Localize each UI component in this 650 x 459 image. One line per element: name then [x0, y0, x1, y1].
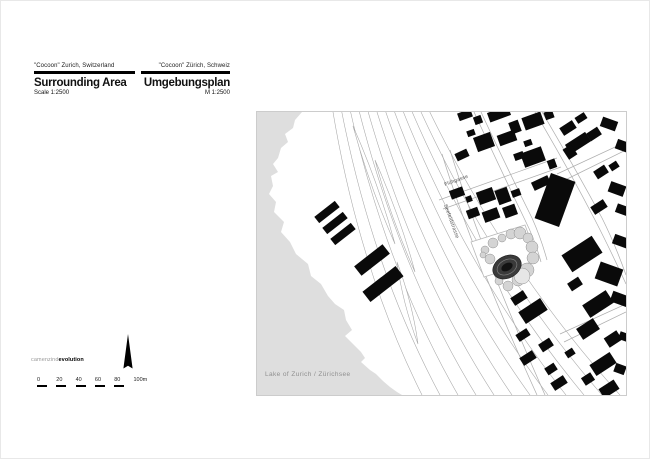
building-footprint: [454, 149, 469, 162]
building-footprint: [476, 187, 496, 205]
north-arrow-icon: [120, 333, 136, 370]
tree-circle: [498, 234, 506, 242]
building-footprint: [502, 204, 518, 219]
street-label-seefeldstrasse: Seefeldstrasse: [442, 204, 460, 240]
building-footprint: [518, 298, 547, 324]
drawing-scale-de: M 1:2500: [141, 90, 230, 96]
drawing-title-de: Umgebungsplan: [141, 77, 230, 89]
building-footprint: [567, 277, 583, 292]
building-footprint: [561, 236, 602, 272]
architect-logo: camenzindevolution: [31, 357, 84, 363]
building-footprint: [564, 348, 575, 359]
tree-circle: [488, 238, 498, 248]
building-footprint: [576, 318, 600, 340]
building-footprint: [457, 112, 473, 121]
scale-tick: 20: [56, 377, 75, 387]
building-footprint: [466, 129, 476, 137]
scale-tick-bar: [37, 385, 47, 387]
building-footprint: [610, 291, 626, 307]
building-footprint: [612, 234, 626, 250]
scale-tick-bar: [114, 385, 124, 387]
building-footprint: [362, 266, 403, 302]
lake-label: Lake of Zurich / Zürichsee: [265, 371, 351, 378]
building-footprint: [559, 120, 576, 136]
scale-tick-bar: [56, 385, 66, 387]
building-footprint: [515, 328, 530, 342]
logo-text-bold: evolution: [59, 357, 84, 363]
building-footprint: [466, 207, 480, 220]
drawing-title-en: Surrounding Area: [34, 77, 135, 89]
scale-tick-bar: [76, 385, 86, 387]
building-footprint: [523, 139, 533, 147]
title-block: "Cocoon" Zurich, Switzerland Surrounding…: [34, 63, 230, 96]
building-footprint: [574, 112, 587, 124]
building-footprint: [511, 188, 522, 198]
title-column-german: "Cocoon" Zürich, Schweiz Umgebungsplan M…: [141, 63, 230, 96]
tree-circle: [485, 254, 495, 264]
building-footprint: [613, 363, 626, 375]
building-footprint: [449, 186, 465, 199]
scale-tick: 80: [114, 377, 133, 387]
drawing-scale-en: Scale 1:2500: [34, 90, 135, 96]
scale-tick: 40: [76, 377, 95, 387]
building-footprint: [589, 352, 616, 376]
logo-text-light: camenzind: [31, 357, 59, 363]
building-footprint: [615, 139, 626, 153]
project-name-de: "Cocoon" Zürich, Schweiz: [141, 63, 230, 69]
building-footprint: [547, 158, 558, 169]
building-footprint: [600, 117, 618, 132]
tree-circle: [503, 281, 513, 291]
title-column-english: "Cocoon" Zurich, Switzerland Surrounding…: [34, 63, 135, 96]
title-rule-right: [141, 71, 230, 74]
title-rule-left: [34, 71, 135, 74]
building-footprint: [615, 203, 626, 216]
scale-tick-bar: [95, 385, 105, 387]
building-footprint: [582, 290, 614, 318]
scale-tick: 60: [95, 377, 114, 387]
scale-tick: 0: [37, 377, 56, 387]
building-footprint: [521, 112, 544, 131]
building-footprint: [595, 261, 624, 286]
tree-circle: [527, 252, 539, 264]
site-plan-svg: Flühgasse Seefeldstrasse Lake of Zurich …: [257, 112, 626, 395]
building-footprint: [543, 112, 554, 120]
building-footprint: [482, 207, 501, 223]
building-footprint: [510, 290, 527, 306]
tree-circle: [526, 241, 538, 253]
building-footprint: [581, 372, 595, 386]
building-footprint: [538, 338, 554, 353]
building-footprint: [354, 244, 390, 276]
building-footprint: [608, 161, 619, 172]
tree-circle: [480, 252, 486, 258]
building-footprint: [487, 112, 511, 122]
building-footprint: [544, 363, 558, 376]
building-footprint: [473, 115, 483, 125]
building-footprint: [550, 375, 567, 391]
scale-tick-end: 100m: [133, 377, 157, 387]
building-footprint: [598, 379, 619, 395]
drawing-sheet: "Cocoon" Zurich, Switzerland Surrounding…: [0, 0, 650, 459]
project-site: [471, 225, 539, 291]
building-footprint: [497, 130, 518, 146]
project-name-en: "Cocoon" Zurich, Switzerland: [34, 63, 135, 69]
street-label-fluhgasse: Flühgasse: [444, 174, 469, 188]
scale-bar: 0 20 40 60 80 100m: [37, 377, 157, 387]
site-plan-map: Flühgasse Seefeldstrasse Lake of Zurich …: [256, 111, 627, 396]
building-footprint: [593, 165, 609, 180]
building-footprint: [608, 181, 626, 197]
